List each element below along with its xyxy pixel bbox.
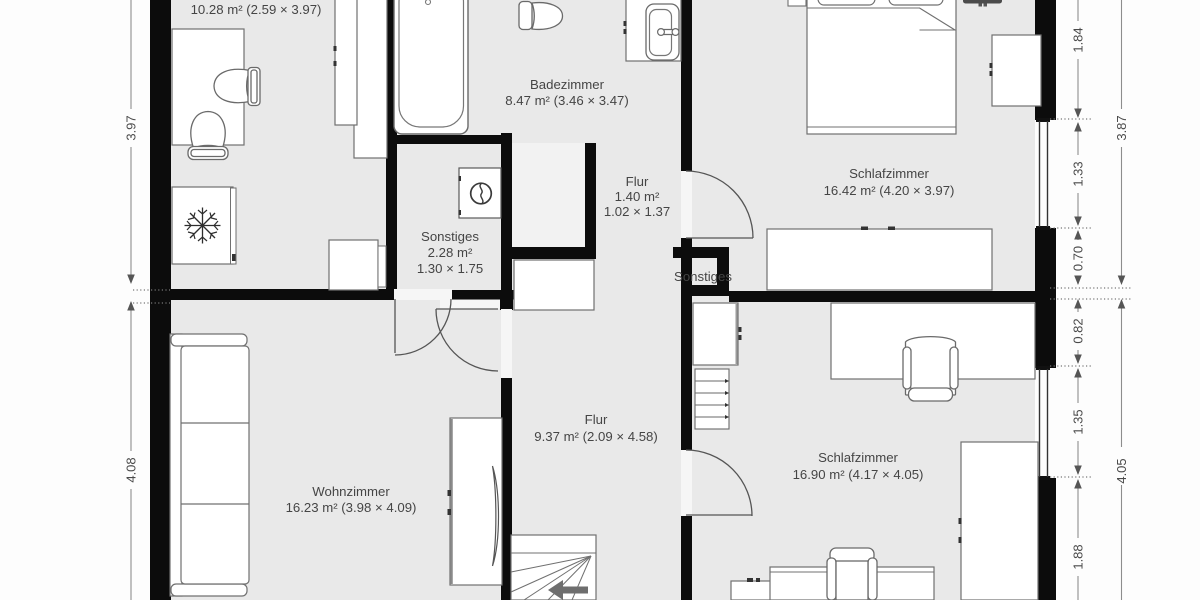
svg-text:1.30 × 1.75: 1.30 × 1.75 <box>417 261 483 276</box>
svg-text:1.33: 1.33 <box>1071 161 1086 186</box>
svg-text:2.28 m²: 2.28 m² <box>428 245 473 260</box>
svg-text:9.37 m² (2.09 × 4.58): 9.37 m² (2.09 × 4.58) <box>534 429 658 444</box>
svg-text:16.42 m² (4.20 × 3.97): 16.42 m² (4.20 × 3.97) <box>824 183 955 198</box>
svg-text:1.84: 1.84 <box>1071 27 1086 52</box>
svg-text:Flur: Flur <box>626 174 649 189</box>
svg-text:16.90 m² (4.17 × 4.05): 16.90 m² (4.17 × 4.05) <box>793 467 924 482</box>
svg-text:1.40 m²: 1.40 m² <box>615 189 660 204</box>
svg-text:10.28 m² (2.59 × 3.97): 10.28 m² (2.59 × 3.97) <box>191 2 322 17</box>
svg-text:3.87: 3.87 <box>1114 115 1129 140</box>
svg-text:4.08: 4.08 <box>124 457 139 482</box>
svg-text:8.47 m² (3.46 × 3.47): 8.47 m² (3.46 × 3.47) <box>505 93 629 108</box>
svg-text:Flur: Flur <box>585 412 608 427</box>
svg-text:3.97: 3.97 <box>124 115 139 140</box>
svg-text:1.02 × 1.37: 1.02 × 1.37 <box>604 204 670 219</box>
svg-text:Sonstiges: Sonstiges <box>421 229 479 244</box>
svg-text:Schlafzimmer: Schlafzimmer <box>849 166 929 181</box>
svg-text:1.88: 1.88 <box>1071 544 1086 569</box>
svg-text:16.23 m² (3.98 × 4.09): 16.23 m² (3.98 × 4.09) <box>286 500 417 515</box>
svg-text:1.35: 1.35 <box>1071 409 1086 434</box>
svg-text:4.05: 4.05 <box>1114 458 1129 483</box>
svg-text:0.70: 0.70 <box>1071 246 1086 271</box>
svg-text:Wohnzimmer: Wohnzimmer <box>312 484 390 499</box>
svg-text:Schlafzimmer: Schlafzimmer <box>818 450 898 465</box>
svg-text:Badezimmer: Badezimmer <box>530 77 605 92</box>
svg-text:0.82: 0.82 <box>1071 318 1086 343</box>
svg-text:Sonstiges: Sonstiges <box>674 269 732 284</box>
